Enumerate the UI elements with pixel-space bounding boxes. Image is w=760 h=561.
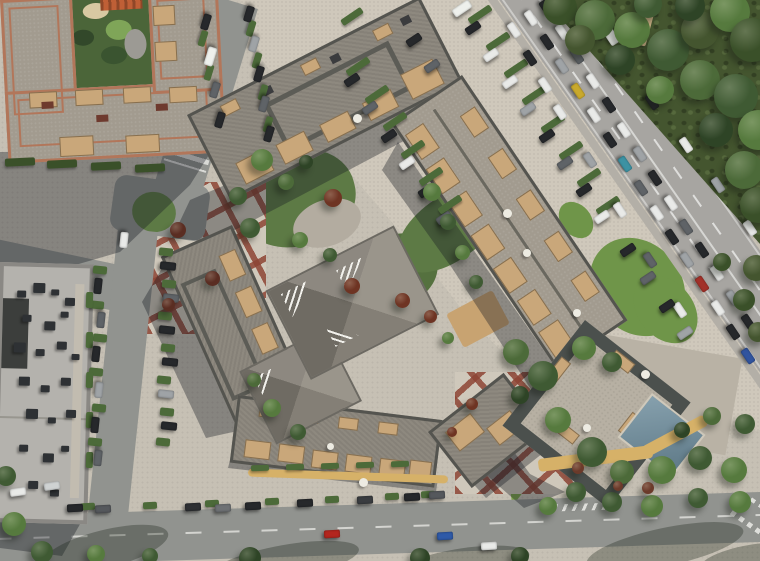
hedge [5, 157, 35, 167]
car [96, 312, 106, 329]
hedge [325, 495, 339, 503]
car [185, 503, 201, 512]
tree [539, 497, 557, 515]
tree [641, 495, 663, 517]
hvac-unit [43, 453, 54, 462]
tree [572, 462, 584, 474]
wood-terrace [153, 5, 176, 26]
hedge [161, 343, 176, 352]
hedge [93, 333, 108, 342]
tree [610, 460, 634, 484]
tree [410, 548, 430, 561]
hedge [143, 501, 157, 509]
tree [511, 547, 529, 561]
hvac-unit [14, 342, 26, 352]
car [481, 542, 497, 551]
tree [229, 187, 247, 205]
bush [101, 45, 128, 64]
wood-terrace [460, 106, 489, 138]
wood-terrace [488, 148, 517, 180]
tree [725, 151, 760, 189]
hvac-layer [4, 266, 90, 268]
tree [648, 456, 676, 484]
tree [572, 336, 596, 360]
tree [733, 289, 755, 311]
wood-terrace [300, 57, 321, 76]
hedge [160, 407, 175, 416]
car [93, 278, 103, 295]
wood-terrace [277, 443, 305, 464]
wood-terrace [75, 89, 104, 106]
car [437, 532, 453, 541]
hvac-unit [33, 283, 45, 293]
hedge [135, 163, 165, 173]
car [324, 530, 340, 539]
hedge [93, 265, 108, 274]
tree [440, 214, 456, 230]
wood-terrace [123, 86, 152, 103]
planter [156, 103, 168, 111]
tree [688, 488, 708, 508]
hvac-unit [65, 298, 75, 306]
tree [735, 414, 755, 434]
tree [602, 492, 622, 512]
tree [528, 361, 558, 391]
hedge [286, 464, 304, 471]
car [162, 357, 179, 367]
hvac-unit [61, 446, 69, 453]
car [93, 450, 103, 467]
hvac-unit [61, 312, 69, 319]
hvac-unit [66, 410, 76, 418]
umbrella [573, 309, 581, 317]
hvac-unit [28, 481, 38, 489]
tree [442, 332, 454, 344]
hvac-unit [17, 290, 26, 297]
car [91, 346, 101, 363]
skylight [327, 317, 359, 347]
car [404, 493, 420, 502]
hvac-unit [26, 409, 38, 419]
hvac-unit [61, 378, 71, 386]
tree [344, 278, 360, 294]
tree [278, 174, 294, 190]
wood-terrace [516, 189, 545, 221]
tree [170, 222, 186, 238]
tree [323, 248, 337, 262]
tree [721, 457, 747, 483]
tree [613, 481, 623, 491]
hvac-unit [71, 354, 79, 361]
wood-terrace [154, 41, 177, 62]
car [215, 504, 231, 513]
tree [292, 232, 308, 248]
hedge [265, 497, 279, 505]
planter [41, 101, 53, 109]
tree [699, 113, 733, 147]
hedge [156, 437, 171, 446]
courtyard-playground [64, 0, 155, 89]
tree [251, 149, 273, 171]
tree [299, 155, 313, 169]
wood-terrace [59, 135, 94, 157]
hedge [159, 247, 174, 256]
tree [503, 339, 529, 365]
umbrella [353, 114, 362, 123]
hedge [356, 462, 374, 469]
tree [240, 218, 260, 238]
wood-terrace [338, 416, 359, 430]
tree [642, 482, 654, 494]
hedge [85, 452, 93, 468]
hvac-unit [50, 489, 59, 496]
hedge [162, 279, 177, 288]
hedge [91, 161, 121, 171]
car [95, 505, 111, 514]
wood-terrace [125, 134, 160, 154]
tree [605, 45, 635, 75]
tree [688, 446, 712, 470]
tree [162, 298, 175, 311]
umbrella [641, 370, 650, 379]
bush [72, 29, 95, 46]
umbrella [523, 249, 531, 257]
tree [602, 352, 622, 372]
hedge [251, 465, 269, 472]
hedge [85, 372, 93, 388]
tree [423, 183, 441, 201]
wood-terrace [544, 231, 573, 263]
hedge [85, 292, 93, 308]
wood-terrace [243, 439, 271, 460]
tree [263, 399, 281, 417]
hedge [157, 375, 172, 384]
skylight [281, 279, 323, 318]
tree [566, 482, 586, 502]
wood-terrace [377, 421, 398, 435]
tree [2, 512, 26, 536]
hvac-unit [48, 417, 56, 424]
tree [466, 398, 478, 410]
tree [455, 245, 470, 260]
hedge [321, 463, 339, 470]
hvac-unit [51, 289, 59, 296]
hvac-unit [19, 377, 30, 386]
tree [247, 373, 261, 387]
hvac-unit [36, 349, 45, 356]
tree [424, 310, 437, 323]
wood-terrace [570, 270, 599, 302]
roof-box [400, 14, 413, 26]
car [161, 421, 178, 431]
car [429, 491, 445, 500]
tree [646, 76, 674, 104]
hedge [85, 332, 93, 348]
car [245, 502, 261, 511]
tree [674, 422, 690, 438]
wood-terrace [372, 23, 393, 42]
umbrella [583, 424, 591, 432]
hvac-unit [57, 342, 67, 350]
umbrella [359, 478, 368, 487]
planter [96, 114, 108, 122]
tree [31, 541, 53, 561]
courtyard-block-building [0, 0, 223, 162]
aerial-scene [0, 0, 760, 561]
hedge [391, 461, 409, 468]
tree [511, 386, 529, 404]
car [159, 325, 176, 335]
wood-terrace [219, 249, 247, 282]
tree [447, 427, 457, 437]
hedge [385, 492, 399, 500]
hvac-unit [19, 445, 28, 452]
tree [713, 253, 731, 271]
tree [565, 25, 595, 55]
tree [703, 407, 721, 425]
hvac-unit [44, 321, 55, 330]
tree [729, 491, 751, 513]
wood-terrace [169, 86, 198, 103]
tree [290, 424, 306, 440]
tree [324, 189, 342, 207]
tree [87, 545, 105, 561]
tree [395, 293, 410, 308]
car [357, 496, 373, 505]
balcony-strip [70, 284, 85, 498]
hedge [92, 403, 107, 412]
inner-court-notch [1, 298, 29, 369]
tree [142, 548, 158, 561]
car [158, 389, 175, 399]
car [119, 232, 129, 249]
car [160, 261, 177, 271]
tree [545, 407, 571, 433]
hedge [88, 437, 103, 446]
hedge [47, 159, 77, 169]
tree [205, 271, 220, 286]
umbrella [327, 443, 334, 450]
tree [469, 275, 483, 289]
hedge [158, 311, 173, 320]
hvac-unit [41, 385, 50, 392]
path [124, 28, 148, 59]
hvac-unit [22, 315, 31, 322]
car [94, 382, 104, 399]
car [90, 417, 100, 434]
roof-box [329, 53, 342, 65]
car [67, 504, 83, 513]
car [297, 499, 313, 508]
umbrella [503, 209, 512, 218]
